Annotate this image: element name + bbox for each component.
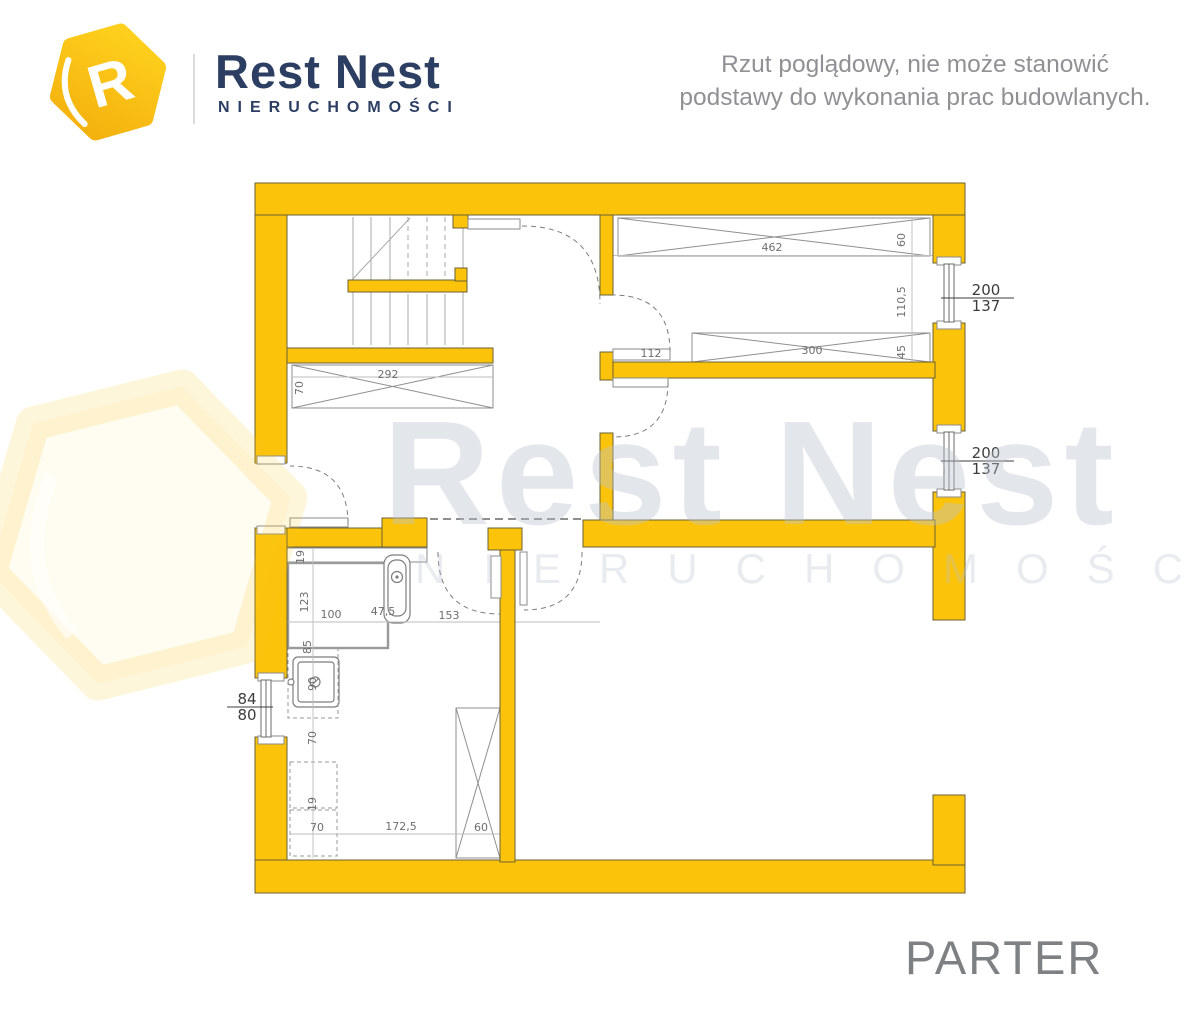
stair-top-door-arc (522, 226, 600, 304)
wall-hall-vertical-2 (600, 352, 613, 380)
dim-label: 153 (439, 609, 460, 622)
wall-right-1 (933, 215, 965, 263)
door-jamb-tab (453, 215, 468, 228)
floor-title: PARTER (905, 930, 1103, 985)
stair-direction-line (350, 218, 410, 282)
dim-label: 300 (802, 344, 823, 357)
bedroom1-door-arc (613, 295, 670, 352)
dim-label: 45 (895, 345, 908, 359)
stair-top-door-leaf (468, 219, 520, 229)
wall-top (255, 183, 965, 215)
dim-label: 292 (378, 368, 399, 381)
hexagon-watermark (0, 355, 340, 715)
dim-label: 70 (306, 731, 319, 745)
page: Rest Nest NIERUCHOMOŚCI (0, 0, 1200, 1010)
brand-name: Rest Nest (215, 44, 441, 99)
disclaimer-line-1: Rzut poglądowy, nie może stanowić (640, 48, 1190, 81)
wall-left-lower (255, 737, 287, 863)
wall-right-return (933, 795, 965, 865)
hexagon-watermark-shape (0, 367, 323, 702)
stair-landing-tab (455, 268, 467, 281)
bedroom2-door-leaf (613, 378, 668, 387)
dim-label: 60 (895, 233, 908, 247)
dim-label: 112 (641, 347, 662, 360)
stair-landing-wall (348, 280, 467, 292)
brand-watermark-subtext: NIERUCHOMOŚCI (415, 548, 1200, 590)
dim-label: 19 (306, 797, 319, 811)
dim-label: 110,5 (895, 286, 908, 318)
disclaimer: Rzut poglądowy, nie może stanowić podsta… (640, 48, 1190, 114)
header: R Rest Nest NIERUCHOMOŚCI Rzut poglądowy… (0, 0, 1200, 160)
dim-label: 60 (474, 821, 488, 834)
dim-label: 47,5 (371, 605, 396, 618)
brand-subtitle: NIERUCHOMOŚCI (218, 99, 460, 117)
wall-bottom (255, 860, 965, 893)
disclaimer-line-2: podstawy do wykonania prac budowlanych. (640, 81, 1190, 114)
dim-label: 172,5 (385, 820, 417, 833)
window-right-1 (937, 257, 961, 329)
wall-hall-vertical-1 (600, 215, 613, 295)
wall-kitchen-divider (500, 550, 515, 862)
logo-divider (193, 54, 195, 124)
window-size-label: 137 (972, 297, 1001, 315)
wall-rooms-divider (613, 362, 935, 378)
tall-cabinet-kitchen (456, 708, 500, 858)
dim-label: 462 (762, 241, 783, 254)
brand-watermark-text: Rest Nest (383, 400, 1120, 548)
dim-label: 70 (310, 821, 324, 834)
rest-nest-logo: R (40, 22, 180, 147)
